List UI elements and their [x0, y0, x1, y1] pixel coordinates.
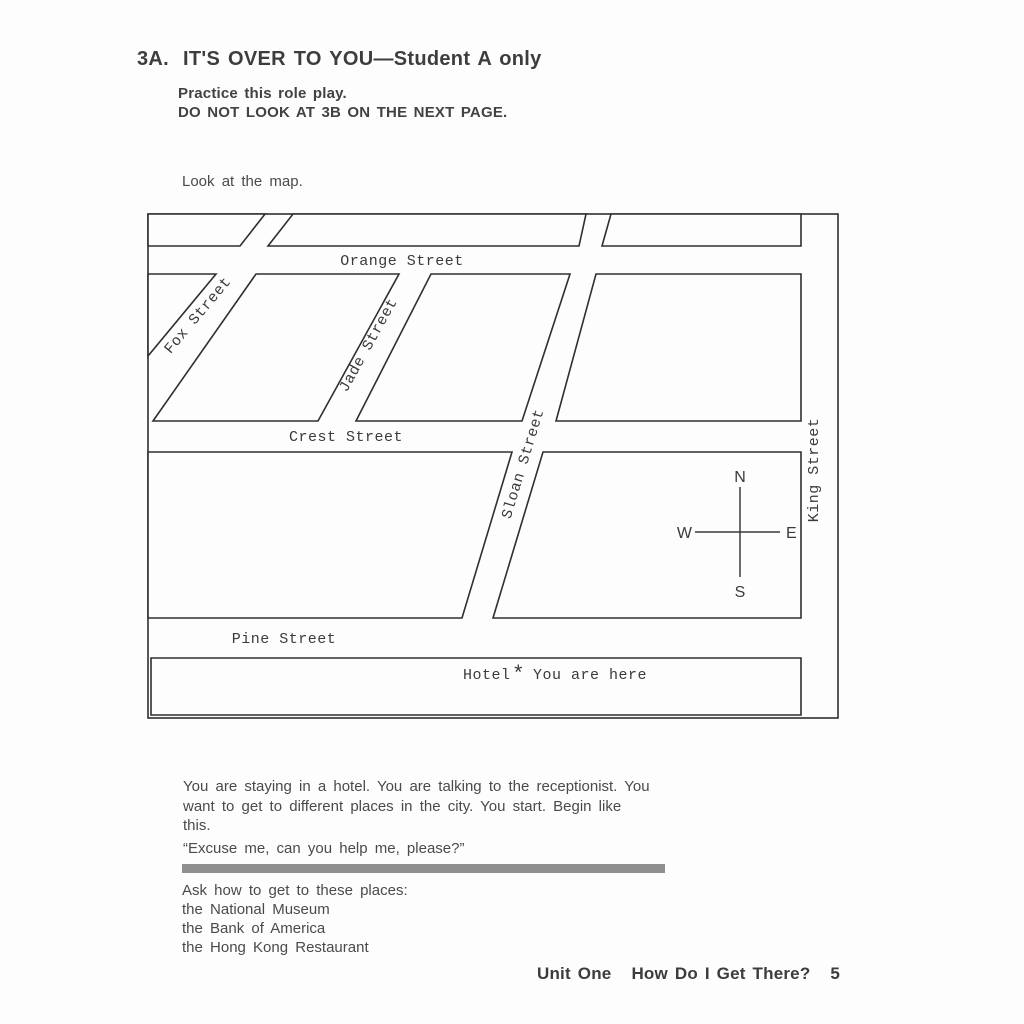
map-block — [148, 214, 265, 246]
street-label-king: King Street — [806, 418, 823, 523]
map-block — [356, 274, 570, 421]
textbook-page: 3A. IT'S OVER TO YOU—Student A only Prac… — [0, 0, 1024, 1024]
map-block — [268, 214, 586, 246]
footer-page-number: 5 — [830, 964, 840, 984]
task-heading: Ask how to get to these places: — [182, 881, 408, 900]
you-are-here-label: You are here — [533, 667, 647, 684]
city-map: Orange Street Crest Street Pine Street F… — [140, 200, 860, 730]
street-label-crest: Crest Street — [289, 429, 403, 446]
street-label-pine: Pine Street — [232, 631, 337, 648]
instruction-line-2: DO NOT LOOK AT 3B ON THE NEXT PAGE. — [178, 104, 507, 121]
map-block — [602, 214, 801, 246]
divider-bar — [182, 864, 665, 873]
page-footer: Unit One How Do I Get There? 5 — [537, 964, 840, 984]
scenario-line: want to get to different places in the c… — [183, 797, 650, 817]
compass-east-label: E — [786, 525, 797, 542]
compass-west-label: W — [677, 525, 693, 542]
compass-south-label: S — [735, 584, 746, 601]
map-caption: Look at the map. — [182, 173, 303, 190]
place-item: the Hong Kong Restaurant — [182, 938, 408, 957]
place-item: the Bank of America — [182, 919, 408, 938]
scenario-paragraph: You are staying in a hotel. You are talk… — [183, 777, 650, 836]
map-block — [148, 452, 512, 618]
you-are-here-marker-icon: * — [512, 664, 525, 687]
scenario-line: this. — [183, 816, 650, 836]
section-number: 3A. — [137, 48, 169, 71]
footer-book-title: How Do I Get There? — [631, 964, 810, 984]
footer-unit: Unit One — [537, 964, 611, 984]
instruction-line-1: Practice this role play. — [178, 85, 347, 102]
task-list: Ask how to get to these places: the Nati… — [182, 881, 408, 957]
hotel-label: Hotel — [463, 667, 511, 684]
page-header: 3A. IT'S OVER TO YOU—Student A only — [137, 48, 542, 71]
example-quote: “Excuse me, can you help me, please?” — [183, 840, 464, 857]
map-block — [493, 452, 801, 618]
compass-north-label: N — [734, 469, 746, 486]
street-label-orange: Orange Street — [340, 253, 464, 270]
page-title: IT'S OVER TO YOU—Student A only — [183, 48, 542, 71]
place-item: the National Museum — [182, 900, 408, 919]
scenario-line: You are staying in a hotel. You are talk… — [183, 777, 650, 797]
map-block — [556, 274, 801, 421]
